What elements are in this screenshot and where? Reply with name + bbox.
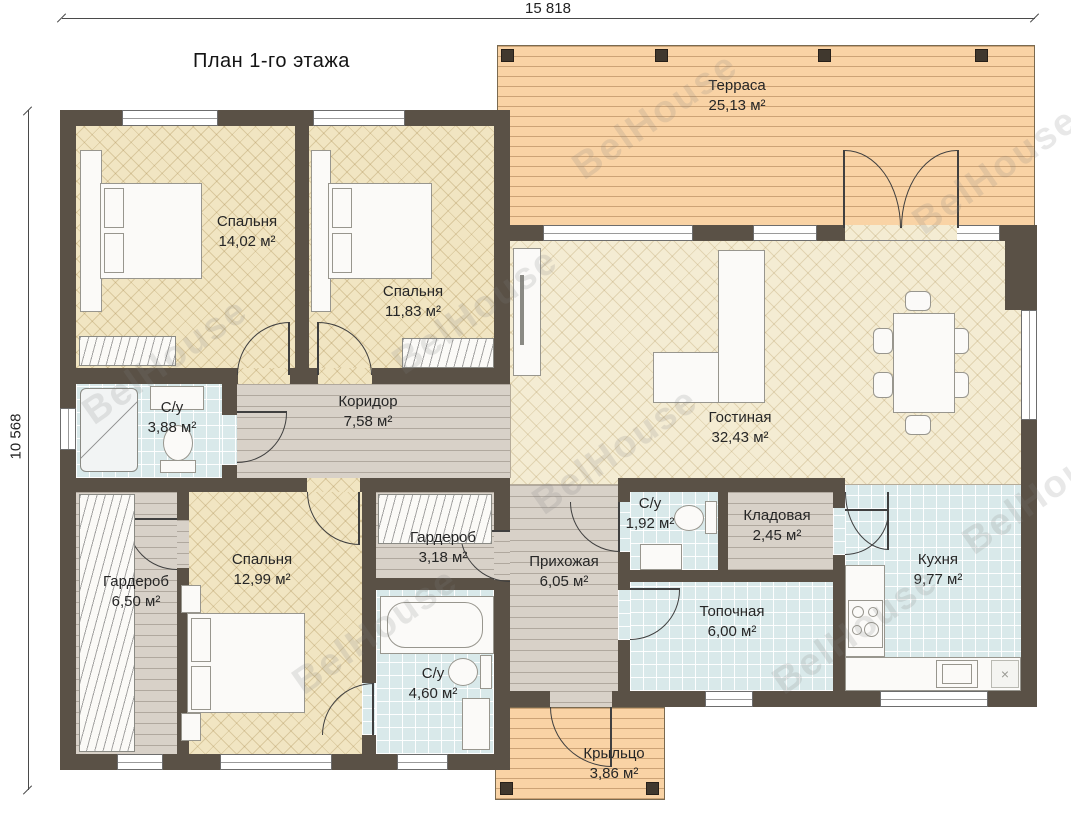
tv-symbol (520, 275, 524, 345)
pillow-symbol (332, 188, 352, 228)
bathtub-inner (387, 602, 483, 648)
door-leaf (237, 411, 287, 413)
wall-segment (628, 570, 833, 582)
door-opening (833, 508, 845, 555)
chair-symbol (873, 328, 893, 354)
toilet-tank-symbol (480, 655, 492, 689)
pillow-symbol (104, 233, 124, 273)
room-name: Гардероб (103, 572, 169, 592)
room-label-boiler-room: Топочная 6,00 м² (699, 602, 764, 643)
window (753, 225, 817, 241)
room-name: Спальня (383, 282, 443, 302)
room-area: 4,60 м² (409, 684, 458, 704)
room-area: 3,86 м² (583, 764, 644, 784)
window (397, 754, 448, 770)
dimension-line-left (28, 110, 29, 790)
door-opening (550, 691, 612, 707)
door-opening (177, 520, 189, 568)
door-leaf (288, 322, 290, 375)
door-opening (618, 590, 630, 640)
terrace-post (975, 49, 988, 62)
burner-symbol (864, 622, 879, 637)
dimension-width: 15 818 (498, 0, 598, 17)
room-area: 14,02 м² (217, 232, 277, 252)
room-label-corridor: Коридор 7,58 м² (338, 392, 397, 433)
sofa-symbol (718, 250, 765, 403)
vanity-symbol (462, 698, 490, 750)
shower-symbol (80, 388, 138, 472)
terrace-post (818, 49, 831, 62)
pillow-symbol (191, 666, 211, 710)
wardrobe-symbol (402, 338, 494, 368)
room-name: Терраса (708, 76, 766, 96)
door-leaf (618, 502, 620, 552)
window (880, 691, 988, 707)
window (1021, 310, 1037, 420)
floor-transition (845, 484, 1021, 485)
wall-segment (618, 478, 845, 492)
room-area: 3,88 м² (148, 418, 197, 438)
wall-segment (494, 478, 510, 770)
dining-table-symbol (893, 313, 955, 413)
kitchen-sink-basin (942, 664, 972, 684)
room-area: 7,58 м² (338, 412, 397, 432)
chair-symbol (905, 291, 931, 311)
wall-segment (376, 578, 494, 590)
room-label-bedroom-1: Спальня 14,02 м² (217, 212, 277, 253)
room-name: Кладовая (743, 506, 810, 526)
room-label-hallway: Прихожая 6,05 м² (529, 552, 599, 593)
terrace-door-leaf (957, 150, 959, 228)
room-label-wardrobe-2: Гардероб 3,18 м² (410, 528, 476, 569)
room-name: С/у (409, 664, 458, 684)
toilet-tank-symbol (705, 501, 717, 534)
door-leaf (887, 492, 889, 550)
room-label-kitchen: Кухня 9,77 м² (914, 550, 963, 591)
room-label-storage: Кладовая 2,45 м² (743, 506, 810, 547)
room-name: Топочная (699, 602, 764, 622)
room-area: 6,05 м² (529, 572, 599, 592)
room-name: С/у (626, 494, 675, 514)
porch-post (646, 782, 659, 795)
room-area: 6,50 м² (103, 592, 169, 612)
room-label-bathroom-1: С/у 3,88 м² (148, 398, 197, 439)
room-label-bathroom-3: С/у 4,60 м² (409, 664, 458, 705)
wall-segment (60, 478, 494, 492)
room-area: 12,99 м² (232, 570, 292, 590)
room-area: 6,00 м² (699, 622, 764, 642)
wall-segment (295, 126, 309, 370)
terrace-post (655, 49, 668, 62)
room-label-bedroom-2: Спальня 11,83 м² (383, 282, 443, 323)
room-label-bathroom-2: С/у 1,92 м² (626, 494, 675, 535)
room-name: С/у (148, 398, 197, 418)
room-area: 3,18 м² (410, 548, 476, 568)
terrace-door-leaf (843, 150, 845, 228)
window (117, 754, 163, 770)
window (220, 754, 332, 770)
room-area: 1,92 м² (626, 514, 675, 534)
toilet-symbol (674, 505, 704, 531)
door-opening (222, 415, 237, 465)
nightstand-symbol (80, 150, 102, 312)
terrace-post (501, 49, 514, 62)
sofa-chaise-symbol (653, 352, 719, 403)
page-title: План 1-го этажа (193, 50, 350, 73)
burner-symbol (852, 625, 862, 635)
window (955, 225, 1000, 241)
room-area: 9,77 м² (914, 570, 963, 590)
window (543, 225, 693, 241)
room-name: Прихожая (529, 552, 599, 572)
room-name: Крыльцо (583, 744, 644, 764)
room-name: Кухня (914, 550, 963, 570)
window (122, 110, 218, 126)
wall-segment (1005, 225, 1037, 310)
wardrobe-shelves-symbol (79, 494, 135, 752)
window (705, 691, 753, 707)
door-leaf (358, 492, 360, 545)
door-leaf (630, 588, 680, 590)
room-label-terrace: Терраса 25,13 м² (708, 76, 766, 117)
sink-symbol (640, 544, 682, 570)
room-area: 2,45 м² (743, 526, 810, 546)
pillow-symbol (332, 233, 352, 273)
room-label-bedroom-3: Спальня 12,99 м² (232, 550, 292, 591)
pillow-symbol (104, 188, 124, 228)
toilet-tank-symbol (160, 460, 196, 473)
floor-plan: 15 818 10 568 План 1-го этажа (0, 0, 1071, 822)
window (60, 408, 76, 450)
window (313, 110, 405, 126)
room-area: 32,43 м² (709, 428, 772, 448)
wall-segment (494, 110, 510, 384)
dishwasher-icon: × (991, 660, 1019, 688)
room-name: Гостиная (709, 408, 772, 428)
floor-transition (510, 384, 511, 478)
burner-symbol (852, 606, 864, 618)
nightstand-symbol (181, 585, 201, 613)
door-leaf (317, 322, 319, 375)
wardrobe-symbol (79, 336, 176, 366)
room-name: Спальня (232, 550, 292, 570)
porch-post (500, 782, 513, 795)
dimension-height: 10 568 (8, 402, 25, 472)
nightstand-symbol (181, 713, 201, 741)
pillow-symbol (191, 618, 211, 662)
chair-symbol (873, 372, 893, 398)
door-leaf (372, 683, 374, 735)
dimension-line-top (62, 18, 1035, 19)
wall-segment (718, 492, 728, 572)
door-opening (307, 478, 360, 492)
room-area: 25,13 м² (708, 96, 766, 116)
room-name: Спальня (217, 212, 277, 232)
room-label-wardrobe-1: Гардероб 6,50 м² (103, 572, 169, 613)
burner-symbol (868, 607, 878, 617)
tv-stand-symbol (513, 248, 541, 376)
room-name: Коридор (338, 392, 397, 412)
room-area: 11,83 м² (383, 302, 443, 322)
chair-symbol (905, 415, 931, 435)
room-name: Гардероб (410, 528, 476, 548)
room-label-porch: Крыльцо 3,86 м² (583, 744, 644, 785)
room-label-living-room: Гостиная 32,43 м² (709, 408, 772, 449)
floor-transition (510, 484, 618, 485)
